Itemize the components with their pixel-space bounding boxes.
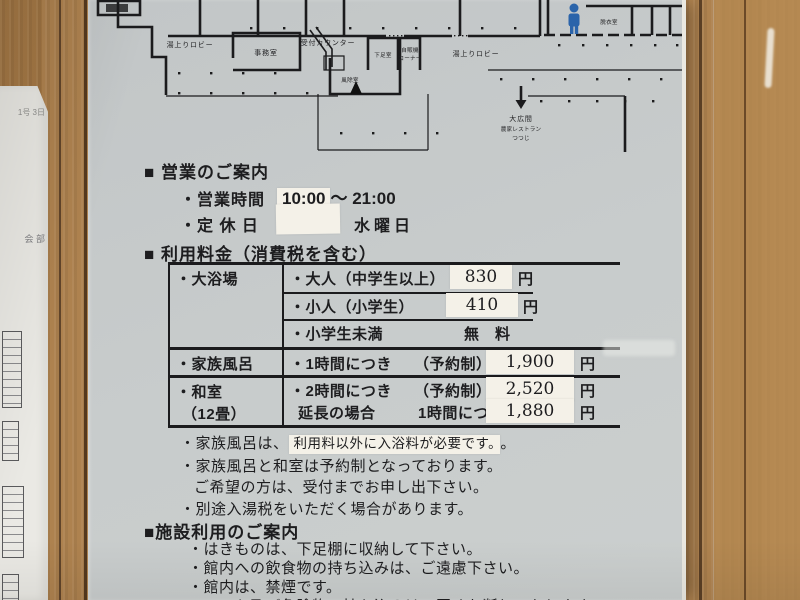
floorplan-label-vending-2: コーナー bbox=[398, 55, 421, 62]
wood-plank-seam bbox=[744, 0, 746, 600]
table-border bbox=[168, 425, 620, 428]
yen-unit: 円 bbox=[580, 380, 596, 401]
fee-note-sticker: 利用料以外に入浴料が必要です。 bbox=[289, 435, 501, 454]
closed-day-value: 水曜日 bbox=[354, 212, 414, 236]
facility-item-1: ・はきものは、下足棚に収納して下さい。 bbox=[188, 538, 482, 559]
price-sticker-child: 410 bbox=[446, 293, 518, 317]
price-sticker-adult: 830 bbox=[450, 265, 512, 289]
yen-unit: 円 bbox=[580, 402, 596, 423]
fee-item-extension: 延長の場合 bbox=[298, 402, 376, 423]
fee-group-washitsu-size: （12畳） bbox=[182, 403, 246, 424]
person-icon bbox=[569, 4, 580, 35]
fee-note-2: ・家族風呂と和室は予約制となっております。 bbox=[180, 455, 502, 476]
fee-item-adult: ・大人（中学生以上） bbox=[290, 268, 445, 289]
fee-group-washitsu: ・和室 bbox=[176, 381, 223, 402]
information-sign-board: 湯上りロビー 事務室 受付カウンター 下足室 自販機 コーナー 風除室 湯上りロ… bbox=[88, 0, 686, 600]
floorplan-label-lobby-left: 湯上りロビー bbox=[167, 40, 214, 49]
structural-column-dots bbox=[106, 4, 678, 134]
paper-text-fragment: 会 部 bbox=[24, 234, 45, 244]
fee-note-washitsu: （予約制） bbox=[414, 380, 492, 401]
table-line bbox=[282, 319, 533, 321]
floorplan-label-top-right-room: 脱衣室 bbox=[600, 18, 618, 26]
fee-note-1: ・家族風呂は、利用料以外に入浴料が必要です。。 bbox=[180, 432, 516, 453]
floorplan-label-restaurant-name: つつじ bbox=[512, 135, 529, 142]
table-border bbox=[168, 262, 170, 428]
hours-value-rest: ～ 21:00 bbox=[330, 189, 395, 208]
floorplan-label-restaurant: 農家レストラン bbox=[501, 125, 542, 133]
fee-group-family-bath: ・家族風呂 bbox=[176, 353, 254, 374]
yen-unit: 円 bbox=[523, 296, 539, 317]
price-sticker-washitsu: 2,520 bbox=[486, 377, 574, 401]
erased-text-smudge bbox=[603, 340, 675, 356]
paper-grid-table bbox=[2, 421, 19, 461]
fee-note-1-pre: ・家族風呂は、 bbox=[180, 435, 289, 452]
fee-note-3: ご希望の方は、受付までお申し出下さい。 bbox=[194, 476, 489, 497]
price-sticker-family: 1,900 bbox=[486, 350, 574, 374]
floorplan-thin-lines bbox=[166, 27, 682, 150]
floorplan-label-vending-1: 自販機 bbox=[401, 46, 419, 54]
fee-note-4: ・別途入湯税をいただく場合があります。 bbox=[180, 498, 473, 519]
floorplan-label-windbreak: 風除室 bbox=[341, 76, 359, 84]
down-arrow-icon bbox=[516, 86, 527, 109]
wood-plank-seam bbox=[84, 0, 87, 600]
floorplan-label-lobby-right: 湯上りロビー bbox=[453, 49, 500, 58]
fee-item-infant: ・小学生未満 bbox=[290, 323, 383, 344]
wood-plank bbox=[714, 0, 800, 600]
paper-grid-table bbox=[2, 331, 22, 408]
fee-table: ・大浴場 ・大人（中学生以上） 830 円 ・小人（小学生） 410 円 ・小学… bbox=[168, 262, 620, 428]
facility-item-2: ・館内への飲食物の持ち込みは、ご遠慮下さい。 bbox=[188, 557, 529, 578]
floorplan-label-shoe-room: 下足室 bbox=[374, 51, 392, 59]
left-partial-paper: 1号 3日 会 部 bbox=[0, 86, 48, 600]
blank-sticker-patch bbox=[276, 203, 341, 234]
paper-grid-table bbox=[2, 486, 24, 558]
fee-group-bath: ・大浴場 bbox=[176, 268, 238, 289]
yen-unit: 円 bbox=[518, 268, 534, 289]
floorplan-label-office: 事務室 bbox=[254, 48, 277, 57]
fee-item-washitsu: ・2時間につき bbox=[290, 380, 392, 401]
fee-note-family: （予約制） bbox=[414, 353, 492, 374]
wood-plank-seam bbox=[699, 0, 702, 600]
photo-of-information-sign: 1号 3日 会 部 bbox=[0, 0, 800, 600]
paper-text-fragment: 1号 3日 bbox=[18, 108, 45, 118]
paper-grid-table bbox=[2, 574, 19, 600]
wood-plank-seam bbox=[59, 0, 61, 600]
floorplan-label-hall: 大広間 bbox=[509, 114, 532, 123]
table-divider bbox=[282, 262, 284, 428]
fee-infant-free: 無 料 bbox=[464, 323, 511, 344]
table-border bbox=[168, 262, 620, 265]
fee-item-child: ・小人（小学生） bbox=[290, 296, 414, 317]
closed-day-label: ・定 休 日 bbox=[180, 212, 259, 236]
facility-item-3: ・館内は、禁煙です。 bbox=[188, 576, 342, 597]
floorplan-label-reception: 受付カウンター bbox=[301, 38, 356, 47]
fee-note-1-post: 。 bbox=[500, 435, 516, 452]
hours-label: ・営業時間 bbox=[180, 186, 265, 210]
price-sticker-extension: 1,880 bbox=[486, 399, 574, 423]
wood-plank-seam bbox=[713, 0, 714, 600]
floorplan-diagram: 湯上りロビー 事務室 受付カウンター 下足室 自販機 コーナー 風除室 湯上りロ… bbox=[88, 0, 682, 158]
yen-unit: 円 bbox=[580, 353, 596, 374]
floorplan-walls bbox=[98, 0, 682, 152]
facility-item-4: ・ペット及び危険物の持ち込みは、固くお断りいたします。 bbox=[188, 595, 605, 600]
hours-section-title: ■ 営業のご案内 bbox=[144, 158, 269, 183]
fee-item-family: ・1時間につき bbox=[290, 353, 392, 374]
